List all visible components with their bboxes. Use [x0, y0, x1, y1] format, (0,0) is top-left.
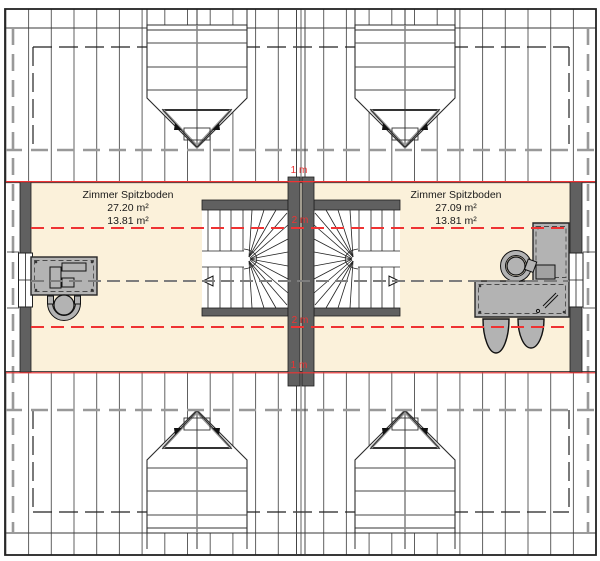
office-chair-left	[48, 295, 81, 318]
room-left-area-reduced: 13.81 m²	[107, 215, 148, 227]
gable-wall-left	[7, 182, 33, 372]
room-left-area: 27.20 m²	[107, 202, 148, 214]
room-right-area-reduced: 13.81 m²	[435, 215, 476, 227]
room-right-name: Zimmer Spitzboden	[410, 189, 501, 201]
staircase-left	[202, 200, 288, 316]
window-right	[569, 253, 583, 307]
room-left-name: Zimmer Spitzboden	[82, 189, 173, 201]
height-marker-1m-bottom: 1 m	[291, 361, 308, 371]
roof-plan-lower	[5, 372, 596, 555]
desk-left	[31, 257, 97, 295]
height-marker-1m-top: 1 m	[291, 166, 308, 176]
height-marker-2m-upper: 2 m	[292, 216, 309, 226]
room-right-area: 27.09 m²	[435, 202, 476, 214]
staircase-right	[314, 200, 400, 316]
gable-wall-right	[569, 182, 595, 372]
floorplan-drawing	[0, 0, 600, 561]
height-marker-2m-lower: 2 m	[292, 316, 309, 326]
roof-plan-upper	[5, 9, 596, 182]
floorplan-page: Zimmer Spitzboden 27.20 m² 13.81 m² Zimm…	[0, 0, 600, 561]
